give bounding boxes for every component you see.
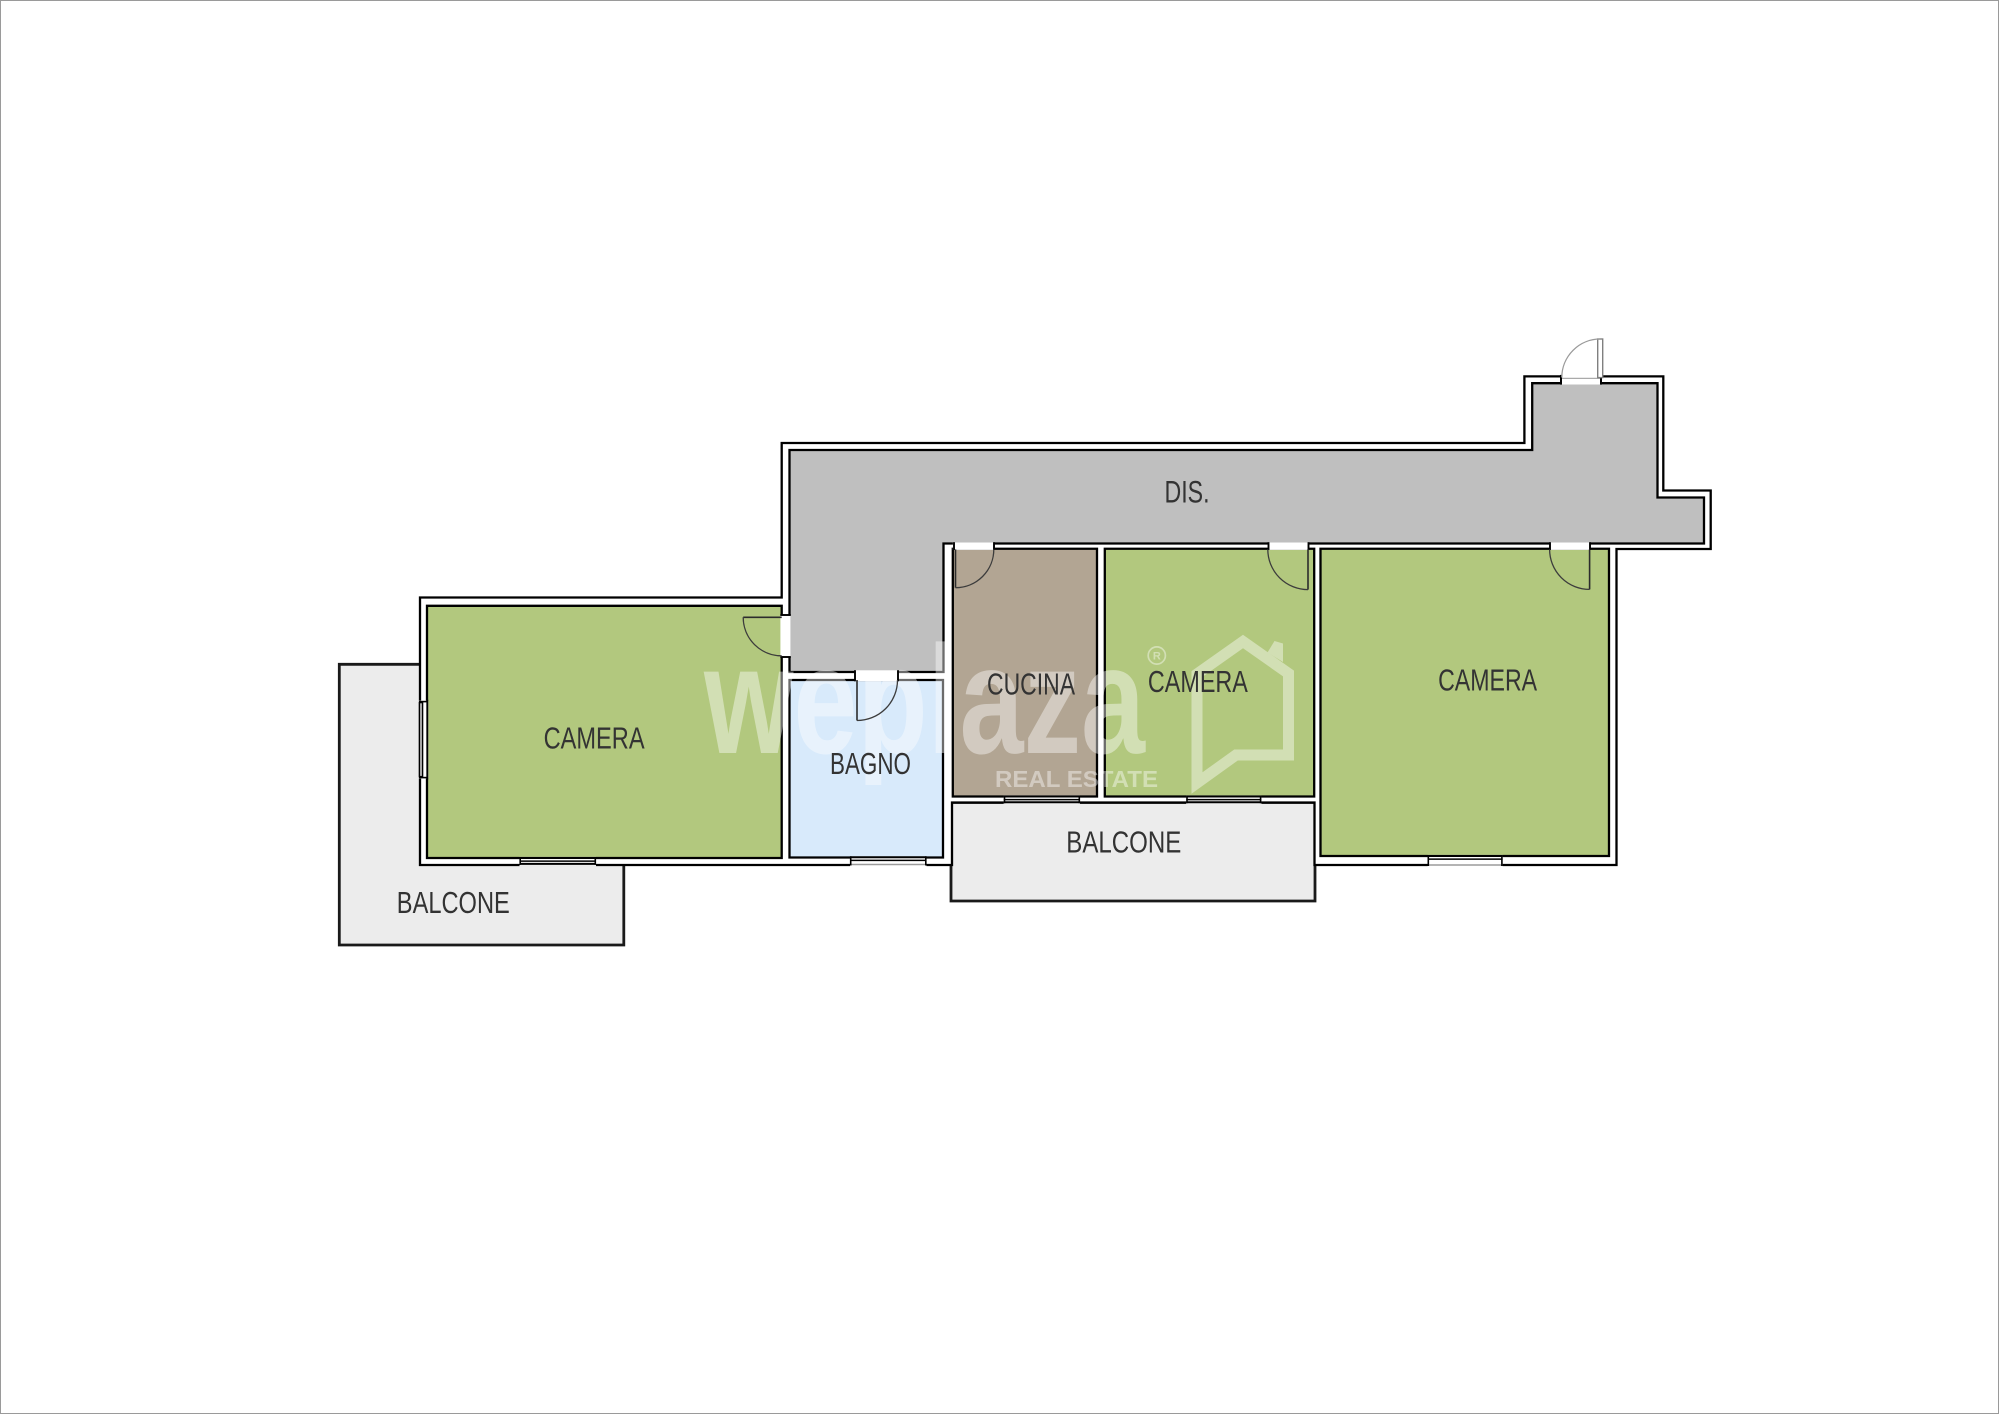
svg-text:BAGNO: BAGNO bbox=[830, 747, 911, 781]
svg-text:weplaza: weplaza bbox=[703, 614, 1146, 786]
svg-text:CAMERA: CAMERA bbox=[544, 721, 645, 755]
svg-text:CAMERA: CAMERA bbox=[1438, 664, 1537, 698]
svg-text:REAL ESTATE: REAL ESTATE bbox=[995, 766, 1158, 792]
svg-text:CUCINA: CUCINA bbox=[987, 667, 1075, 701]
svg-text:BALCONE: BALCONE bbox=[397, 886, 510, 920]
svg-text:R: R bbox=[1153, 651, 1161, 663]
svg-text:DIS.: DIS. bbox=[1165, 474, 1210, 510]
svg-text:CAMERA: CAMERA bbox=[1148, 665, 1248, 699]
svg-text:BALCONE: BALCONE bbox=[1066, 826, 1181, 860]
